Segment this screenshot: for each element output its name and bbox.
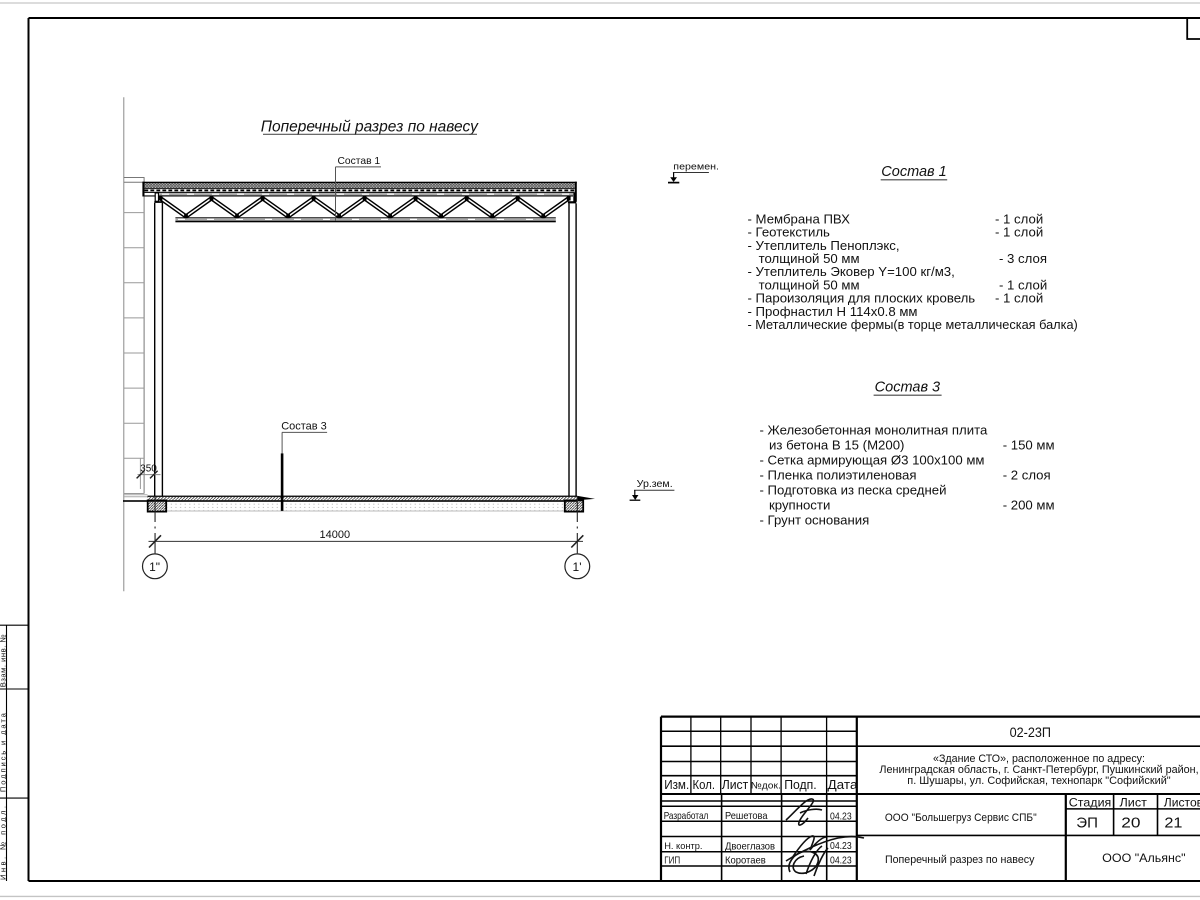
- svg-text:Ур.зем.: Ур.зем.: [637, 478, 673, 490]
- svg-text:Поперечный разрез по навесу: Поперечный разрез по навесу: [261, 119, 479, 136]
- svg-text:20: 20: [1121, 815, 1140, 831]
- svg-text:ГИП: ГИП: [664, 855, 680, 866]
- svg-text:- Сетка армирующая Ø3 100х100: - Сетка армирующая Ø3 100х100 мм: [760, 452, 985, 467]
- svg-text:- 3 слоя: - 3 слоя: [999, 251, 1047, 266]
- svg-text:Лист: Лист: [1120, 795, 1148, 809]
- svg-text:350: 350: [140, 464, 157, 475]
- svg-text:- 1 слой: - 1 слой: [995, 291, 1043, 306]
- svg-text:04.23: 04.23: [830, 812, 852, 823]
- svg-text:Лист: Лист: [722, 777, 749, 792]
- svg-text:- Грунт основания: - Грунт основания: [760, 513, 870, 528]
- svg-text:- 200 мм: - 200 мм: [1003, 498, 1055, 513]
- svg-text:21: 21: [1164, 815, 1182, 831]
- svg-text:Состав 3: Состав 3: [875, 380, 940, 396]
- svg-text:04.23: 04.23: [830, 841, 852, 852]
- svg-text:Листов: Листов: [1164, 795, 1200, 809]
- svg-text:ООО "Альянс": ООО "Альянс": [1102, 851, 1185, 865]
- svg-text:- Пленка полиэтиленовая: - Пленка полиэтиленовая: [760, 468, 917, 483]
- svg-text:02-23П: 02-23П: [1010, 725, 1051, 740]
- svg-text:- Подготовка из песка средней: - Подготовка из песка средней: [760, 483, 947, 498]
- svg-text:ЭП: ЭП: [1076, 815, 1098, 831]
- svg-text:Состав 3: Состав 3: [281, 420, 327, 432]
- svg-text:- 2 слоя: - 2 слоя: [1003, 468, 1051, 483]
- svg-text:Состав 1: Состав 1: [881, 164, 946, 180]
- svg-text:Двоеглазов: Двоеглазов: [725, 841, 775, 852]
- svg-text:- 1 слой: - 1 слой: [995, 225, 1043, 240]
- svg-text:Подп.: Подп.: [784, 777, 817, 792]
- svg-text:Решетова: Решетова: [725, 811, 768, 822]
- svg-text:1': 1': [573, 560, 582, 574]
- svg-text:Стадия: Стадия: [1069, 795, 1112, 809]
- svg-text:Дата: Дата: [828, 777, 859, 792]
- svg-text:Кол.: Кол.: [693, 777, 716, 792]
- svg-text:Изм.: Изм.: [664, 777, 689, 792]
- svg-text:04.23: 04.23: [830, 855, 852, 866]
- svg-text:Взам. инв. №: Взам. инв. №: [0, 634, 7, 687]
- svg-text:- 150 мм: - 150 мм: [1003, 437, 1055, 452]
- svg-text:№док.: №док.: [751, 779, 781, 790]
- svg-text:- Металлические фермы(в торце: - Металлические фермы(в торце металличес…: [748, 317, 1078, 332]
- svg-text:Разработал: Разработал: [664, 810, 709, 822]
- svg-text:крупности: крупности: [769, 498, 830, 513]
- svg-text:п. Шушары, ул. Софийская, техн: п. Шушары, ул. Софийская, технопарк "Соф…: [907, 775, 1171, 787]
- svg-text:из бетона В 15 (М200): из бетона В 15 (М200): [769, 437, 904, 452]
- svg-text:Н. контр.: Н. контр.: [664, 841, 702, 852]
- svg-text:Состав 1: Состав 1: [337, 156, 380, 167]
- svg-text:перемен.: перемен.: [673, 162, 719, 173]
- svg-text:Коротаев: Коротаев: [725, 856, 766, 867]
- svg-text:14000: 14000: [320, 529, 351, 541]
- svg-text:1": 1": [149, 560, 160, 574]
- svg-text:Поперечный разрез по навесу: Поперечный разрез по навесу: [885, 854, 1035, 866]
- svg-text:- Железобетонная монолитная п: - Железобетонная монолитная плита: [760, 422, 989, 437]
- svg-text:ООО "Большегруз Сервис СПБ": ООО "Большегруз Сервис СПБ": [885, 812, 1037, 824]
